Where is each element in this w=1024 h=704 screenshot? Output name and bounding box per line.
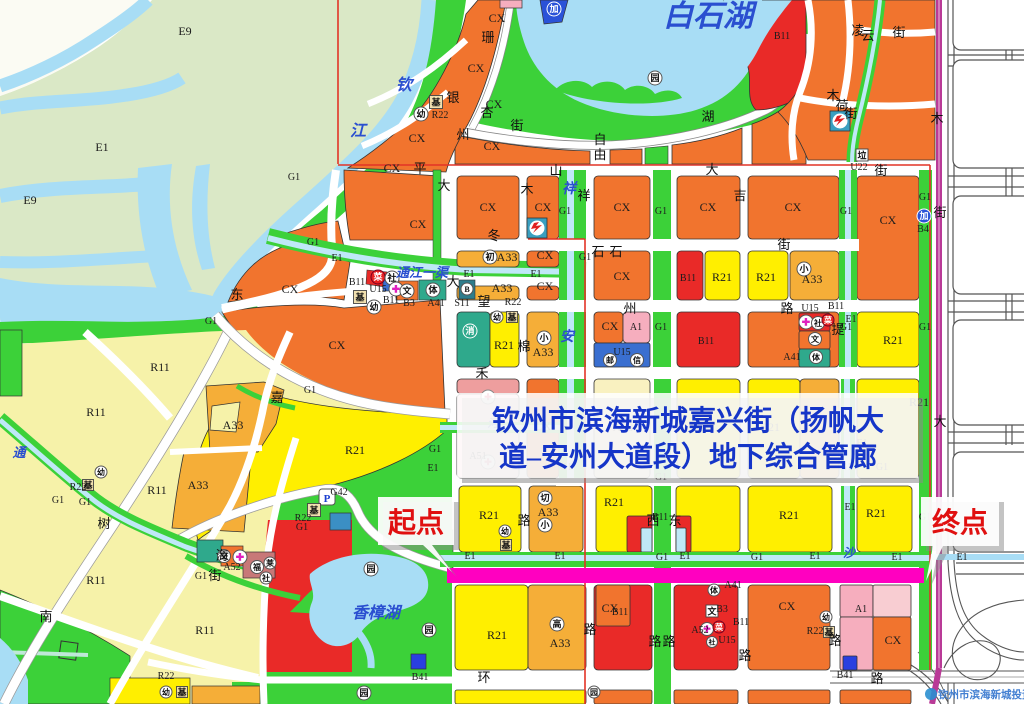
svg-text:B: B — [464, 285, 470, 294]
svg-text:终点: 终点 — [932, 507, 988, 539]
svg-text:信: 信 — [633, 355, 641, 365]
svg-text:州: 州 — [623, 301, 636, 316]
svg-text:E9: E9 — [178, 24, 191, 38]
svg-text:B41: B41 — [412, 672, 429, 683]
svg-text:社: 社 — [708, 638, 716, 647]
svg-text:菜: 菜 — [372, 271, 383, 282]
svg-text:路: 路 — [780, 301, 793, 316]
svg-text:R21: R21 — [604, 495, 624, 509]
svg-text:R21: R21 — [756, 270, 776, 284]
svg-text:E1: E1 — [464, 551, 475, 562]
svg-text:G42: G42 — [330, 487, 347, 498]
svg-text:钦州市滨海新城投资集团: 钦州市滨海新城投资集团 — [938, 688, 1024, 701]
svg-text:路: 路 — [870, 671, 883, 686]
svg-text:B11: B11 — [733, 617, 749, 628]
svg-text:园: 园 — [366, 564, 375, 574]
svg-text:自: 自 — [593, 132, 606, 147]
svg-text:A33: A33 — [538, 505, 559, 519]
svg-text:切: 切 — [540, 493, 549, 503]
svg-text:CX: CX — [468, 61, 485, 75]
svg-text:B11: B11 — [774, 31, 790, 42]
svg-text:U22: U22 — [850, 162, 867, 173]
svg-text:吉: 吉 — [733, 188, 746, 203]
svg-text:A41: A41 — [783, 352, 800, 363]
svg-text:CX: CX — [329, 338, 346, 352]
svg-text:平: 平 — [413, 161, 426, 176]
svg-text:A1: A1 — [630, 322, 642, 333]
svg-text:基: 基 — [176, 686, 187, 697]
svg-text:R22: R22 — [807, 626, 824, 637]
svg-text:云: 云 — [861, 28, 874, 43]
svg-text:A33: A33 — [188, 478, 209, 492]
svg-text:B11: B11 — [698, 336, 714, 347]
svg-text:G1: G1 — [655, 322, 667, 333]
svg-text:路: 路 — [517, 513, 530, 528]
svg-text:CX: CX — [409, 131, 426, 145]
svg-text:垃: 垃 — [857, 149, 866, 160]
svg-text:街: 街 — [208, 568, 221, 583]
svg-text:E1: E1 — [844, 502, 855, 513]
svg-text:南: 南 — [39, 609, 52, 624]
svg-text:杏: 杏 — [480, 105, 493, 120]
svg-text:G1: G1 — [429, 444, 441, 455]
svg-text:CX: CX — [785, 200, 802, 214]
svg-text:G1: G1 — [840, 206, 852, 217]
svg-text:园: 园 — [650, 73, 659, 83]
svg-text:钦州市滨海新城嘉兴街（扬帆大: 钦州市滨海新城嘉兴街（扬帆大 — [492, 404, 884, 437]
svg-text:通: 通 — [12, 445, 27, 460]
svg-text:通江一渠: 通江一渠 — [396, 265, 450, 280]
svg-text:A41: A41 — [427, 298, 444, 309]
svg-text:G1: G1 — [656, 552, 668, 563]
svg-text:B4: B4 — [917, 224, 929, 235]
svg-text:A52: A52 — [691, 625, 708, 636]
svg-text:福: 福 — [252, 562, 261, 572]
svg-text:CX: CX — [700, 200, 717, 214]
svg-text:路: 路 — [828, 633, 841, 648]
svg-text:初: 初 — [485, 251, 494, 262]
svg-text:E1: E1 — [427, 463, 438, 474]
svg-text:街: 街 — [510, 118, 523, 133]
svg-text:G1: G1 — [919, 322, 931, 333]
svg-text:G1: G1 — [919, 192, 931, 203]
svg-text:东: 东 — [230, 287, 243, 302]
svg-text:R11: R11 — [86, 573, 106, 587]
svg-text:CX: CX — [535, 200, 552, 214]
svg-text:提: 提 — [831, 322, 844, 337]
svg-text:G1: G1 — [655, 206, 667, 217]
svg-text:CX: CX — [880, 213, 897, 227]
svg-text:基: 基 — [354, 291, 365, 302]
svg-text:基: 基 — [506, 311, 517, 322]
svg-text:G1: G1 — [195, 571, 207, 582]
svg-text:A33: A33 — [497, 250, 518, 264]
svg-text:R11: R11 — [150, 360, 170, 374]
svg-text:CX: CX — [602, 319, 619, 333]
svg-text:R21: R21 — [883, 333, 903, 347]
svg-text:B11: B11 — [349, 277, 365, 288]
svg-text:文: 文 — [811, 334, 820, 344]
svg-text:大: 大 — [705, 162, 718, 177]
svg-text:基: 基 — [430, 96, 441, 107]
svg-text:B11: B11 — [828, 301, 844, 312]
svg-text:幼: 幼 — [416, 108, 425, 119]
svg-text:幼: 幼 — [369, 301, 378, 312]
svg-text:B11: B11 — [383, 295, 399, 306]
svg-text:沙: 沙 — [843, 546, 857, 560]
svg-text:木: 木 — [520, 182, 533, 197]
svg-text:G1: G1 — [579, 252, 591, 263]
svg-text:U15: U15 — [369, 284, 386, 295]
svg-text:加: 加 — [918, 210, 928, 221]
svg-text:幼: 幼 — [822, 612, 830, 622]
svg-text:E9: E9 — [23, 193, 36, 207]
svg-text:加: 加 — [548, 3, 558, 14]
svg-text:街: 街 — [777, 237, 790, 252]
svg-text:E1: E1 — [679, 551, 690, 562]
svg-text:园: 园 — [424, 625, 433, 635]
svg-text:B41: B41 — [837, 670, 854, 681]
svg-text:G1: G1 — [52, 495, 64, 506]
svg-text:U15: U15 — [718, 635, 735, 646]
svg-text:A52: A52 — [223, 562, 240, 573]
svg-text:E1: E1 — [530, 269, 541, 280]
svg-text:嘉: 嘉 — [270, 390, 283, 405]
svg-text:路: 路 — [662, 634, 675, 649]
svg-text:湖: 湖 — [701, 109, 714, 124]
svg-text:U15: U15 — [613, 347, 630, 358]
svg-text:起点: 起点 — [388, 507, 444, 539]
svg-text:街: 街 — [844, 106, 857, 121]
svg-text:E1: E1 — [956, 552, 967, 563]
svg-text:A33: A33 — [533, 345, 554, 359]
svg-text:安: 安 — [560, 328, 576, 345]
svg-text:R22: R22 — [505, 297, 522, 308]
svg-text:G1: G1 — [304, 385, 316, 396]
svg-text:西: 西 — [646, 513, 659, 528]
svg-text:CX: CX — [480, 200, 497, 214]
svg-text:CX: CX — [537, 248, 554, 262]
svg-text:幼: 幼 — [501, 526, 509, 536]
svg-text:A1: A1 — [855, 604, 867, 615]
svg-text:体: 体 — [812, 352, 821, 362]
svg-text:树: 树 — [97, 516, 110, 531]
svg-text:白石湖: 白石湖 — [663, 0, 758, 33]
svg-text:G1: G1 — [296, 522, 308, 533]
svg-text:A33: A33 — [550, 636, 571, 650]
svg-text:幼: 幼 — [97, 467, 105, 477]
svg-text:G1: G1 — [307, 237, 319, 248]
svg-text:文: 文 — [401, 285, 412, 296]
svg-text:祥: 祥 — [577, 188, 590, 203]
svg-text:冬: 冬 — [487, 228, 500, 243]
svg-text:小: 小 — [539, 519, 549, 530]
svg-text:G1: G1 — [79, 497, 91, 508]
svg-text:B11: B11 — [680, 273, 696, 284]
svg-text:B3: B3 — [716, 604, 728, 615]
svg-text:R22: R22 — [70, 482, 87, 493]
svg-text:CX: CX — [484, 139, 501, 153]
svg-text:小: 小 — [538, 332, 548, 343]
svg-text:大: 大 — [437, 178, 450, 193]
svg-text:幼: 幼 — [162, 687, 170, 697]
svg-text:菜: 菜 — [714, 622, 723, 632]
svg-text:R11: R11 — [86, 405, 106, 419]
svg-text:街: 街 — [933, 205, 946, 220]
svg-text:木: 木 — [930, 111, 943, 126]
svg-text:R11: R11 — [195, 623, 215, 637]
svg-text:海: 海 — [215, 548, 228, 563]
svg-text:CX: CX — [282, 282, 299, 296]
svg-text:祥: 祥 — [562, 180, 578, 197]
svg-text:R21: R21 — [479, 508, 499, 522]
svg-text:G1: G1 — [751, 552, 763, 563]
svg-text:CX: CX — [537, 279, 554, 293]
svg-text:大: 大 — [446, 274, 459, 289]
svg-text:望: 望 — [477, 294, 490, 309]
svg-text:道–安州大道段）地下综合管廊: 道–安州大道段）地下综合管廊 — [499, 440, 877, 473]
svg-text:路: 路 — [583, 622, 596, 637]
svg-text:R22: R22 — [432, 110, 449, 121]
svg-text:E1: E1 — [95, 140, 108, 154]
svg-text:珊: 珊 — [481, 30, 494, 45]
svg-text:✚: ✚ — [392, 285, 401, 296]
svg-text:G1: G1 — [205, 316, 217, 327]
svg-text:基: 基 — [500, 539, 511, 550]
svg-text:体: 体 — [428, 284, 438, 295]
svg-text:江: 江 — [350, 122, 368, 140]
svg-text:街: 街 — [892, 25, 905, 40]
svg-text:园: 园 — [359, 688, 368, 698]
svg-text:CX: CX — [614, 269, 631, 283]
svg-text:路: 路 — [738, 648, 751, 663]
svg-text:园: 园 — [590, 688, 598, 697]
svg-text:B11: B11 — [612, 607, 628, 618]
svg-text:CX: CX — [384, 161, 401, 175]
svg-text:幼: 幼 — [493, 312, 501, 322]
svg-text:由: 由 — [593, 147, 606, 162]
svg-text:R21: R21 — [494, 338, 514, 352]
svg-text:东: 东 — [668, 513, 681, 528]
svg-text:G1: G1 — [559, 206, 571, 217]
svg-text:莱: 莱 — [266, 558, 274, 568]
svg-text:CX: CX — [885, 633, 902, 647]
svg-text:A33: A33 — [802, 272, 823, 286]
svg-text:社: 社 — [261, 573, 270, 583]
svg-text:E1: E1 — [891, 552, 902, 563]
svg-text:R21: R21 — [345, 443, 365, 457]
svg-text:CX: CX — [489, 11, 506, 25]
svg-text:R11: R11 — [147, 483, 167, 497]
svg-text:G1: G1 — [288, 172, 300, 183]
svg-text:禾: 禾 — [475, 366, 488, 381]
svg-text:香樟湖: 香樟湖 — [352, 604, 403, 622]
svg-text:E1: E1 — [331, 253, 342, 264]
svg-text:路: 路 — [648, 634, 661, 649]
svg-text:R21: R21 — [779, 508, 799, 522]
svg-text:U15: U15 — [801, 303, 818, 314]
svg-text:✚: ✚ — [802, 318, 811, 329]
svg-text:CX: CX — [410, 217, 427, 231]
svg-text:环: 环 — [477, 670, 490, 685]
svg-text:消: 消 — [465, 325, 474, 336]
svg-text:石: 石 — [609, 244, 622, 259]
svg-text:石: 石 — [591, 244, 604, 259]
svg-text:州: 州 — [456, 127, 469, 142]
svg-text:R21: R21 — [866, 506, 886, 520]
svg-text:CX: CX — [614, 200, 631, 214]
svg-text:E1: E1 — [463, 269, 474, 280]
svg-text:R22: R22 — [158, 671, 175, 682]
svg-text:R21: R21 — [712, 270, 732, 284]
svg-text:A33: A33 — [223, 418, 244, 432]
svg-text:E1: E1 — [554, 551, 565, 562]
svg-text:银: 银 — [446, 90, 459, 105]
svg-text:CX: CX — [779, 599, 796, 613]
svg-text:A41: A41 — [724, 580, 741, 591]
svg-text:A33: A33 — [492, 281, 513, 295]
svg-text:B3: B3 — [403, 298, 415, 309]
svg-text:S11: S11 — [454, 298, 469, 309]
svg-text:棉: 棉 — [517, 339, 530, 354]
svg-text:大: 大 — [933, 414, 946, 429]
svg-text:高: 高 — [552, 618, 561, 629]
svg-text:社: 社 — [813, 318, 822, 328]
svg-text:街: 街 — [874, 163, 887, 178]
svg-text:体: 体 — [710, 585, 719, 595]
svg-text:E1: E1 — [809, 551, 820, 562]
svg-text:R21: R21 — [487, 628, 507, 642]
svg-text:山: 山 — [549, 163, 562, 178]
